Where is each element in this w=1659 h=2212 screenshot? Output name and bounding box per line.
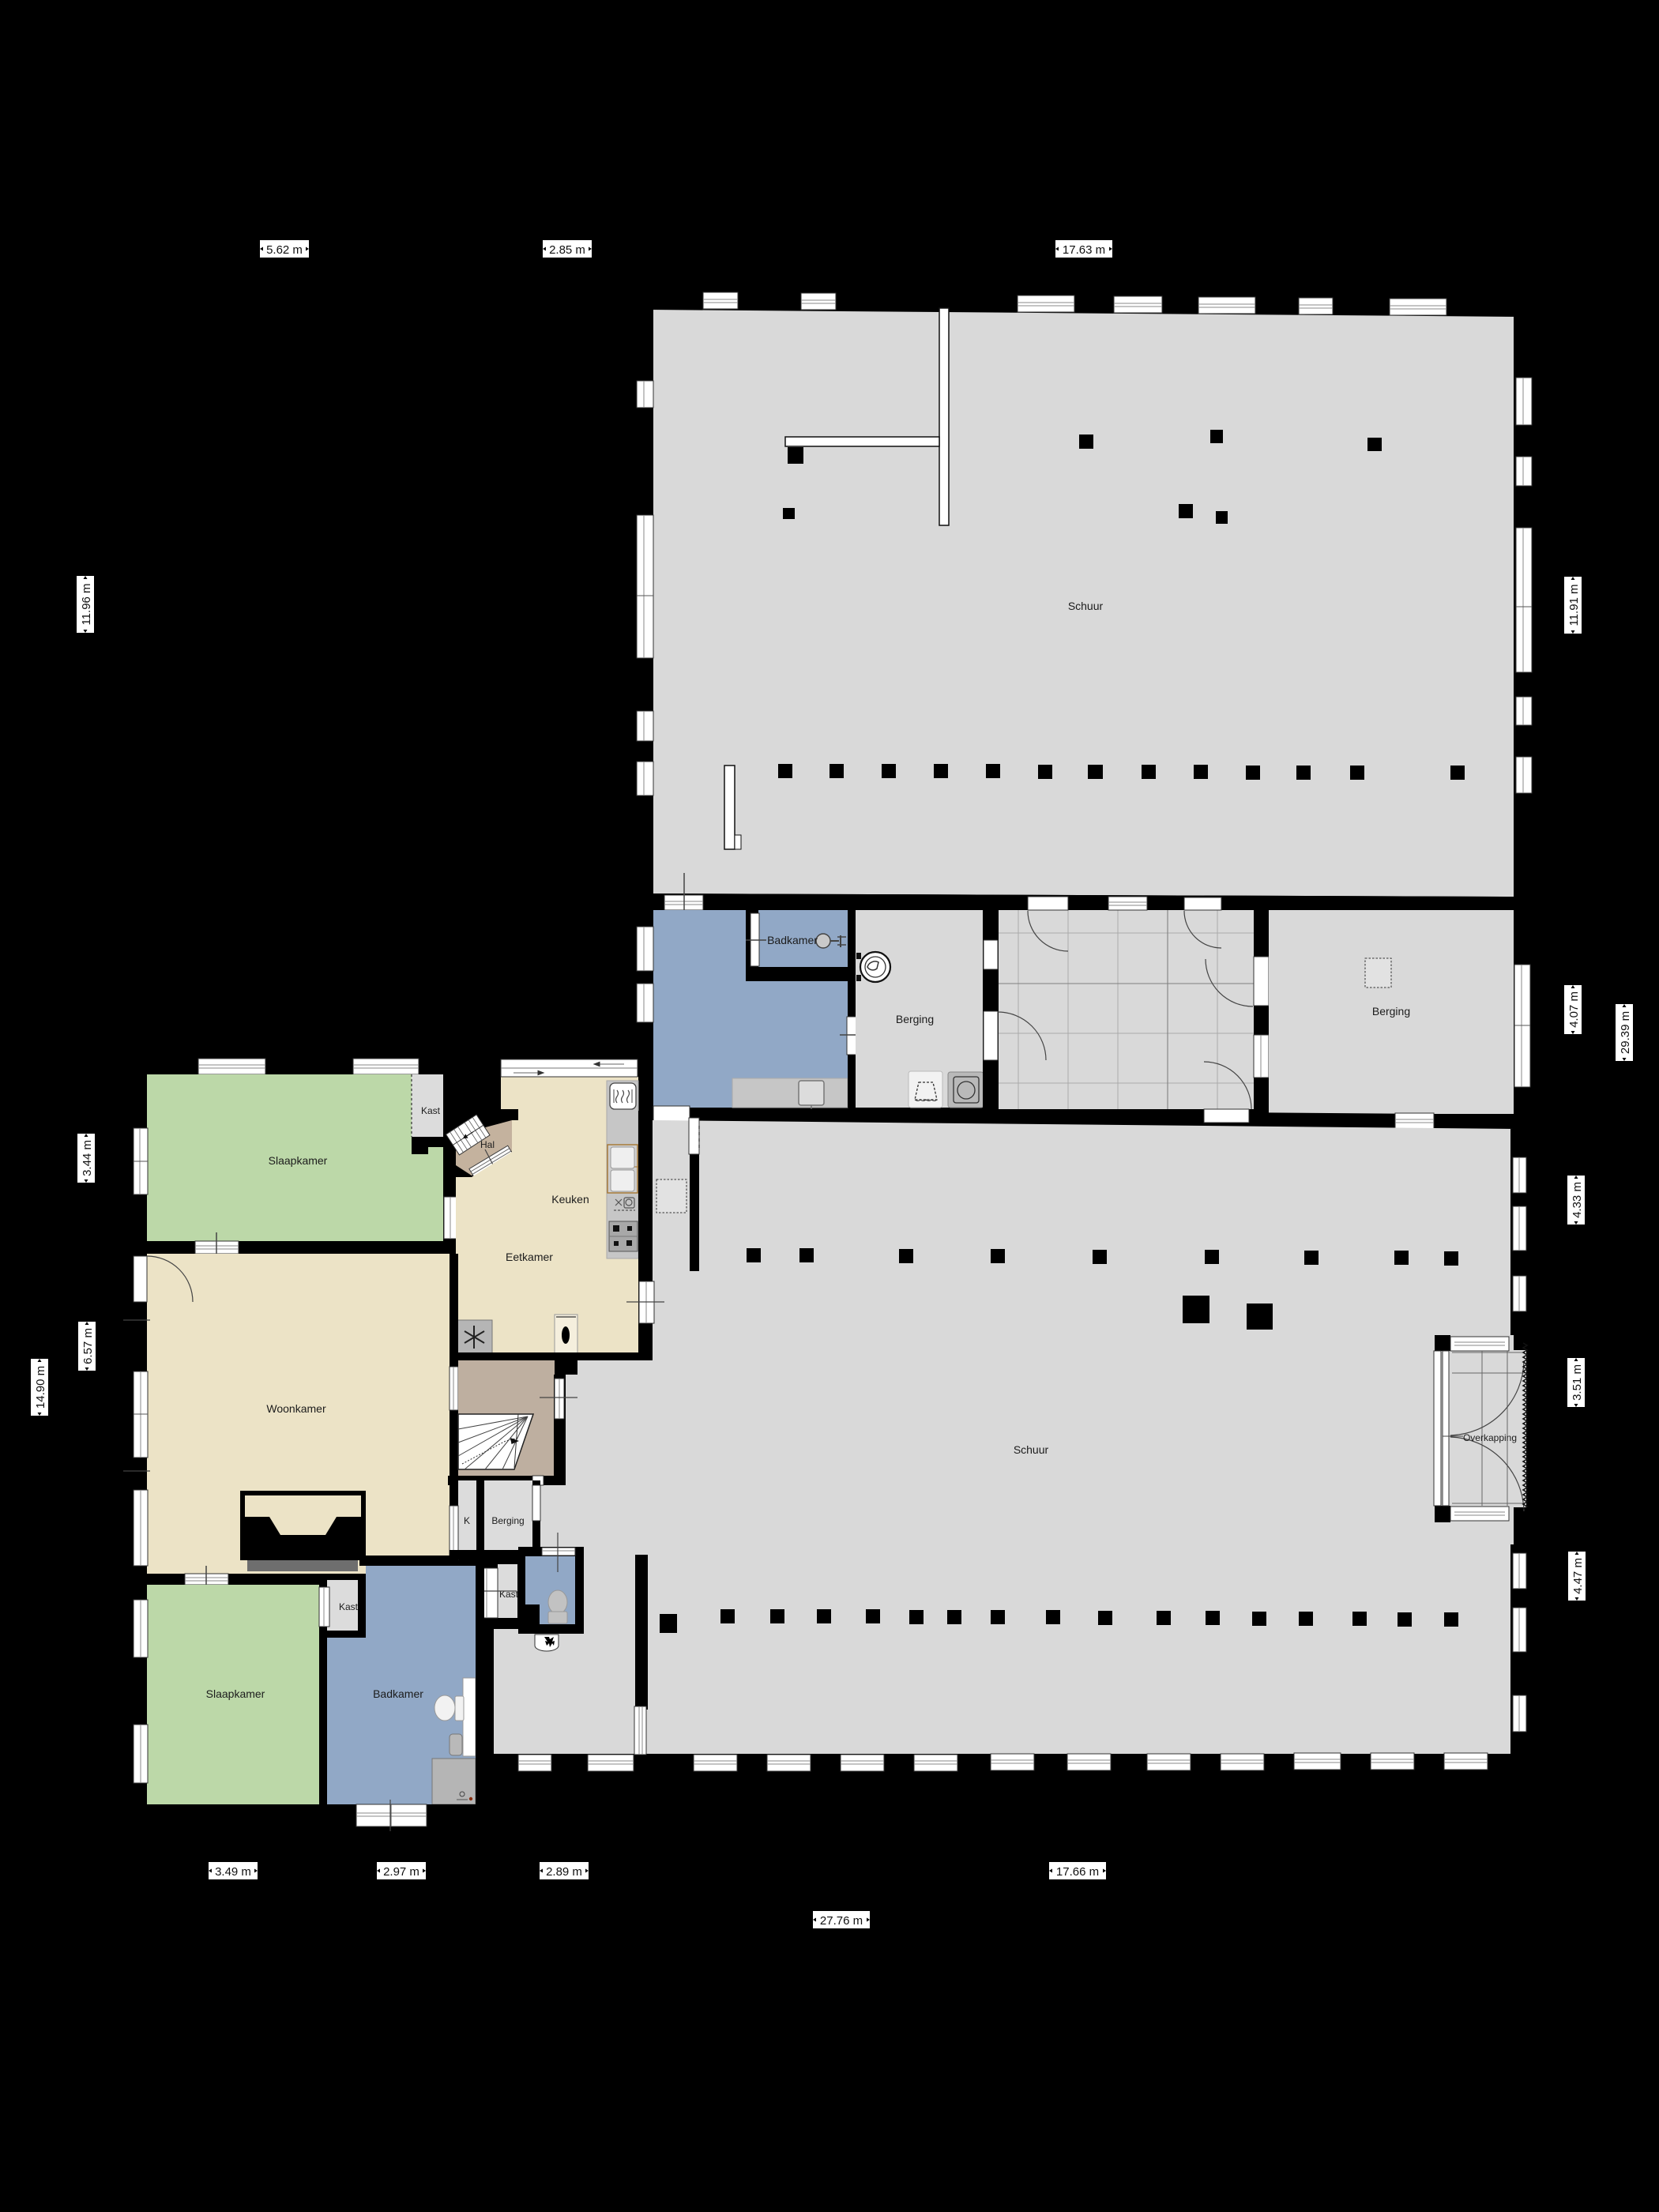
svg-text:Berging: Berging — [1372, 1005, 1410, 1018]
svg-text:2.89 m: 2.89 m — [546, 1865, 582, 1879]
svg-text:Keuken: Keuken — [551, 1193, 589, 1206]
svg-text:5.62 m: 5.62 m — [266, 243, 303, 257]
svg-text:Slaapkamer: Slaapkamer — [269, 1154, 328, 1167]
svg-text:17.63 m: 17.63 m — [1063, 243, 1105, 257]
svg-text:Schuur: Schuur — [1014, 1443, 1049, 1456]
svg-text:3.49 m: 3.49 m — [215, 1865, 251, 1879]
svg-text:17.66 m: 17.66 m — [1056, 1865, 1099, 1879]
svg-text:11.91 m: 11.91 m — [1567, 584, 1581, 626]
svg-text:27.76 m: 27.76 m — [820, 1914, 863, 1928]
svg-text:Badkamer: Badkamer — [373, 1687, 423, 1700]
svg-text:6.57 m: 6.57 m — [81, 1328, 95, 1364]
svg-text:K: K — [464, 1515, 470, 1526]
svg-text:Slaapkamer: Slaapkamer — [206, 1687, 265, 1700]
svg-text:Badkamer: Badkamer — [767, 934, 818, 946]
svg-text:Woonkamer: Woonkamer — [266, 1402, 326, 1415]
svg-text:3.44 m: 3.44 m — [81, 1140, 94, 1176]
svg-text:Kast: Kast — [421, 1105, 441, 1116]
svg-text:Schuur: Schuur — [1068, 600, 1104, 612]
svg-text:Kast: Kast — [499, 1589, 519, 1600]
svg-text:14.90 m: 14.90 m — [34, 1366, 47, 1409]
svg-text:Eetkamer: Eetkamer — [506, 1251, 553, 1263]
svg-text:Berging: Berging — [491, 1515, 524, 1526]
svg-text:11.96 m: 11.96 m — [80, 583, 93, 625]
svg-text:29.39 m: 29.39 m — [1619, 1011, 1632, 1054]
svg-text:3.51 m: 3.51 m — [1571, 1364, 1584, 1401]
svg-text:4.47 m: 4.47 m — [1571, 1558, 1585, 1594]
svg-text:Overkapping: Overkapping — [1463, 1432, 1517, 1443]
svg-text:Hal: Hal — [480, 1139, 495, 1150]
svg-text:2.97 m: 2.97 m — [383, 1865, 419, 1879]
svg-text:4.33 m: 4.33 m — [1571, 1182, 1584, 1218]
svg-text:4.07 m: 4.07 m — [1567, 991, 1581, 1028]
svg-text:Berging: Berging — [896, 1013, 934, 1025]
svg-text:2.85 m: 2.85 m — [549, 243, 585, 257]
svg-text:Kast: Kast — [339, 1601, 359, 1612]
